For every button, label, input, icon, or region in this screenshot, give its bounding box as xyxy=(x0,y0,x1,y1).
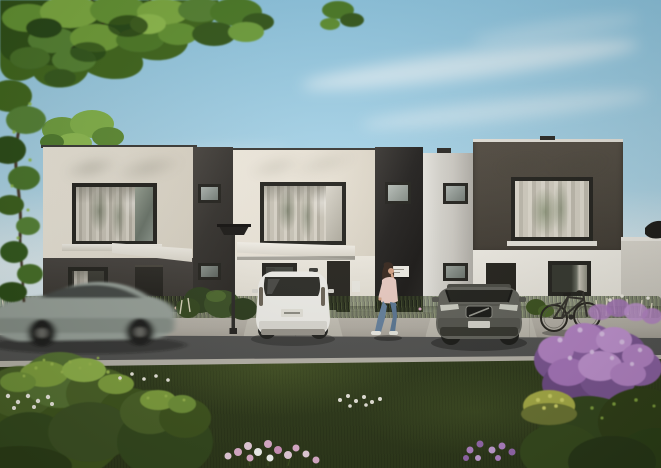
left-tree xyxy=(0,80,46,302)
scene xyxy=(0,0,661,468)
tree-canopy xyxy=(0,0,661,468)
